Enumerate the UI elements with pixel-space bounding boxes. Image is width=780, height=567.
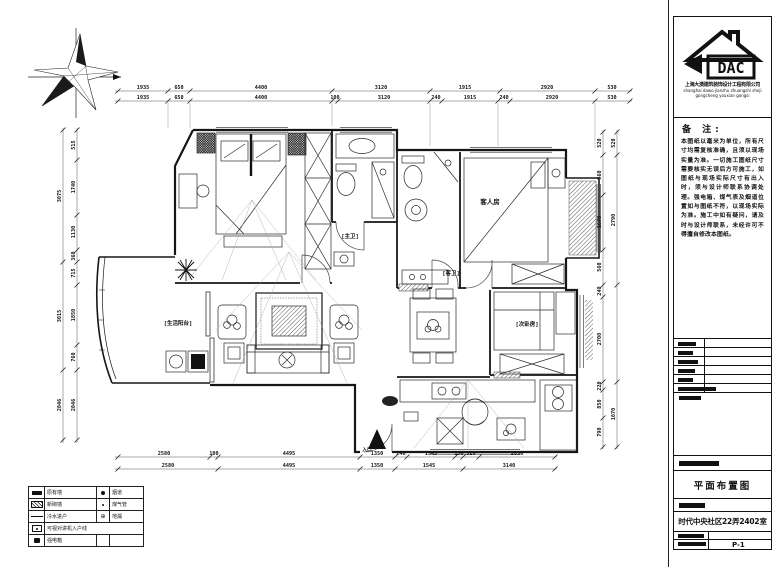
dimension-label: 650 <box>174 85 183 91</box>
legend-row: 强电箱 <box>29 535 143 546</box>
project-name-row: 时代中央社区22弄2402室 <box>674 512 771 532</box>
dimension-label: 1545 <box>423 463 436 469</box>
dimension-label: 760 <box>71 352 77 361</box>
dimension-label: 240 <box>396 451 405 457</box>
dimension-label: 1915 <box>464 95 477 101</box>
wardrobe-block <box>288 133 306 155</box>
floor-plan-svg: [主卫] 客人房 [客卫] [次卧房] [生活阳台] 入口 1935650440… <box>0 0 780 567</box>
dimension-label: 850 <box>597 399 603 408</box>
dimension-label: 3140 <box>503 463 516 469</box>
dimension-label: 560 <box>597 262 603 271</box>
dimension-label: 4400 <box>255 85 268 91</box>
washer-icon <box>166 351 186 372</box>
project-name: 时代中央社区22弄2402室 <box>678 516 767 527</box>
sliding-door <box>399 284 428 291</box>
dimension-label: 3075 <box>57 190 63 203</box>
shower-partition <box>434 152 458 182</box>
toilet-icon <box>336 164 356 196</box>
legend-label: 原有墙 <box>45 487 97 498</box>
room-label-life-balcony: [生活阳台] <box>164 319 193 327</box>
shower-head-icon <box>445 160 451 166</box>
dimension-label: 530 <box>607 95 616 101</box>
dimension-label: 530 <box>607 85 616 91</box>
balcony-sliding-door <box>206 292 214 382</box>
chair-icon <box>436 289 453 299</box>
company-pinyin: gongcheng youxian gongsi <box>674 93 771 98</box>
dimension-label: 1670 <box>597 216 603 229</box>
dimension-layer: 1935650440031201915292053019356504400100… <box>57 85 632 471</box>
dimension-label: 360 <box>71 251 77 260</box>
balcony-planter-hatch <box>569 181 596 255</box>
dimension-label: 240 <box>431 95 440 101</box>
dimension-label: 2830 <box>511 451 524 457</box>
wardrobe-icon <box>500 354 564 374</box>
desk-icon <box>556 292 575 334</box>
dimension-label: 520 <box>466 451 475 457</box>
wardrobe-block <box>197 133 215 153</box>
armchair-icon <box>330 305 358 339</box>
guest-room <box>464 158 565 284</box>
dimension-label: 790 <box>597 427 603 436</box>
guest-bed-icon <box>464 158 548 262</box>
logo-section: DAC 上海大澳建筑装饰设计工程有限公司 shanghai dawo jianz… <box>674 17 771 118</box>
tall-wardrobe-icon <box>305 133 331 269</box>
sheet-number: P-1 <box>732 541 745 549</box>
bed-icon <box>494 292 554 350</box>
toilet-icon <box>402 156 424 189</box>
sink-icon <box>349 139 375 154</box>
legend-label: 可视对讲机入户线 <box>45 523 143 534</box>
dimension-label: 2920 <box>541 85 554 91</box>
compass-rose-icon <box>28 28 121 118</box>
legend-table: 原有墙 烟道 新砌墙 煤气管 冷水进户 ⊕ 地漏 可视对讲机入户线 强电箱 <box>28 486 144 547</box>
logo-text: DAC <box>717 59 744 77</box>
gas-dot-icon <box>102 504 104 506</box>
room-label-guest-room: 客人房 <box>479 197 500 206</box>
window-sill-hatch <box>585 300 593 360</box>
stove-icon <box>432 383 466 399</box>
dimension-label: 2700 <box>597 333 603 346</box>
interior-walls <box>175 130 577 377</box>
cold-water-line-icon <box>31 516 43 517</box>
dimension-label: 100 <box>330 95 339 101</box>
room-label-master-bath: [主卫] <box>341 232 359 240</box>
flue-dot-icon <box>101 491 105 495</box>
legend-label: 地漏 <box>110 511 143 522</box>
dimension-label: 2046 <box>57 399 63 412</box>
kitchen <box>382 380 577 450</box>
second-bedroom <box>494 292 575 374</box>
room-label-guest-bath: [客卫] <box>442 269 460 277</box>
chair-icon <box>197 185 209 197</box>
armchair-icon <box>218 305 246 339</box>
label-row <box>674 499 771 512</box>
label-row <box>674 532 771 540</box>
dimension-label: 1915 <box>459 85 472 91</box>
master-bathroom <box>336 134 394 218</box>
bath-cabinet <box>402 270 448 284</box>
dimension-label: 1740 <box>71 181 77 194</box>
sliding-door <box>494 372 520 378</box>
dimension-label: 2046 <box>71 399 77 412</box>
dimension-label: 1935 <box>137 85 150 91</box>
life-balcony <box>166 259 208 372</box>
legend-label: 煤气管 <box>110 499 143 510</box>
drawing-title-row: 平面布置图 <box>674 471 771 499</box>
legend-label: 烟道 <box>110 487 143 498</box>
dimension-label: 4495 <box>283 451 296 457</box>
power-box-icon <box>34 538 40 543</box>
shoe-cabinet-icon <box>404 412 418 421</box>
dimension-label: 220 <box>597 381 603 390</box>
ceiling-lines <box>414 380 524 448</box>
notes-section: 备 注: 本图纸以毫米为单位，所有尺寸均需复核准确，且须以现场实量为准。一切施工… <box>674 118 771 339</box>
legend-row: 新砌墙 煤气管 <box>29 499 143 511</box>
centerpiece-plant-icon <box>425 320 441 333</box>
legend-label: 强电箱 <box>45 535 97 546</box>
nightstand-icon <box>548 158 565 188</box>
intercom-panel <box>334 252 354 266</box>
notes-body: 本图纸以毫米为单位，所有尺寸均需复核准确，且须以现场实量为准。一切施工图纸尺寸需… <box>681 138 764 240</box>
cabinet-icon <box>188 351 208 372</box>
title-block: DAC 上海大澳建筑装饰设计工程有限公司 shanghai dawo jianz… <box>673 16 772 550</box>
legend-label: 新砌墙 <box>45 499 97 510</box>
dimension-label: 1130 <box>71 226 77 239</box>
double-sink-icon <box>545 385 572 411</box>
dimension-label: 1350 <box>371 451 384 457</box>
basin-icon <box>382 396 398 406</box>
entry-arrow-icon <box>368 429 386 449</box>
legend-row: 原有墙 烟道 <box>29 487 143 499</box>
dimension-label: 240 <box>597 286 603 295</box>
sheet-number-row: P-1 <box>674 540 771 549</box>
basin-icon <box>405 199 427 221</box>
dimension-label: 520 <box>597 138 603 147</box>
counter-icon <box>400 380 535 402</box>
sheet-divider <box>668 0 669 567</box>
drawing-sheet: [主卫] 客人房 [客卫] [次卧房] [生活阳台] 入口 1935650440… <box>0 0 780 567</box>
dimension-label: 150 <box>454 451 463 457</box>
legend-row: 可视对讲机入户线 <box>29 523 143 535</box>
plant-icon <box>224 315 241 329</box>
dimension-label: 4400 <box>255 95 268 101</box>
desk-icon <box>179 174 197 208</box>
person-icon <box>462 399 488 425</box>
dimension-label: 560 <box>597 170 603 179</box>
signature-rows <box>674 339 771 393</box>
dimension-label: 4495 <box>283 463 296 469</box>
side-table-icon <box>224 343 244 363</box>
chair-icon <box>436 353 453 363</box>
vanity-icon <box>336 134 394 158</box>
dimension-label: 1850 <box>71 309 77 322</box>
dimension-label: 2790 <box>611 214 617 227</box>
rug-icon <box>256 293 322 349</box>
double-bed-icon <box>216 134 286 234</box>
dimension-label: 3120 <box>375 85 388 91</box>
low-cabinet-icon <box>512 264 564 284</box>
dimension-label: 515 <box>71 140 77 149</box>
bed-bench-icon <box>224 236 282 247</box>
existing-wall-swatch <box>32 491 42 495</box>
dimension-label: 1070 <box>611 408 617 421</box>
master-bedroom <box>179 133 331 280</box>
drawing-title: 平面布置图 <box>694 478 752 492</box>
dimension-label: 2580 <box>158 451 171 457</box>
floor-drain-icon: ⊕ <box>100 514 105 520</box>
legend-label: 冷水进户 <box>45 511 97 522</box>
guest-bathroom <box>402 152 458 284</box>
label-row <box>674 456 771 471</box>
dimension-label: 715 <box>71 268 77 277</box>
dimension-label: 3120 <box>378 95 391 101</box>
notes-title: 备 注: <box>682 122 771 135</box>
new-wall-swatch <box>31 501 43 508</box>
revision-box <box>674 393 771 456</box>
dimension-label: 1935 <box>137 95 150 101</box>
intercom-icon <box>32 525 42 532</box>
exterior-walls <box>97 130 599 452</box>
dimension-label: 520 <box>611 138 617 147</box>
plant-icon <box>175 259 197 281</box>
dimension-label: 650 <box>174 95 183 101</box>
dimension-label: 3015 <box>57 310 63 323</box>
shower-icon <box>372 162 394 218</box>
cabinet-icon <box>437 418 463 444</box>
dac-logo-icon: DAC <box>674 20 771 82</box>
counter-icon <box>540 380 577 450</box>
room-label-second-bedroom: [次卧房] <box>515 320 538 328</box>
dimension-label: 240 <box>499 95 508 101</box>
living-room <box>216 252 362 383</box>
dimension-label: 1545 <box>425 451 438 457</box>
dimension-label: 1350 <box>371 463 384 469</box>
chair-icon <box>413 353 430 363</box>
dining-area <box>410 289 456 363</box>
legend-row: 冷水进户 ⊕ 地漏 <box>29 511 143 523</box>
small-table-icon <box>497 418 525 440</box>
dimension-label: 100 <box>209 451 218 457</box>
dimension-label: 2920 <box>546 95 559 101</box>
dimension-label: 2580 <box>162 463 175 469</box>
